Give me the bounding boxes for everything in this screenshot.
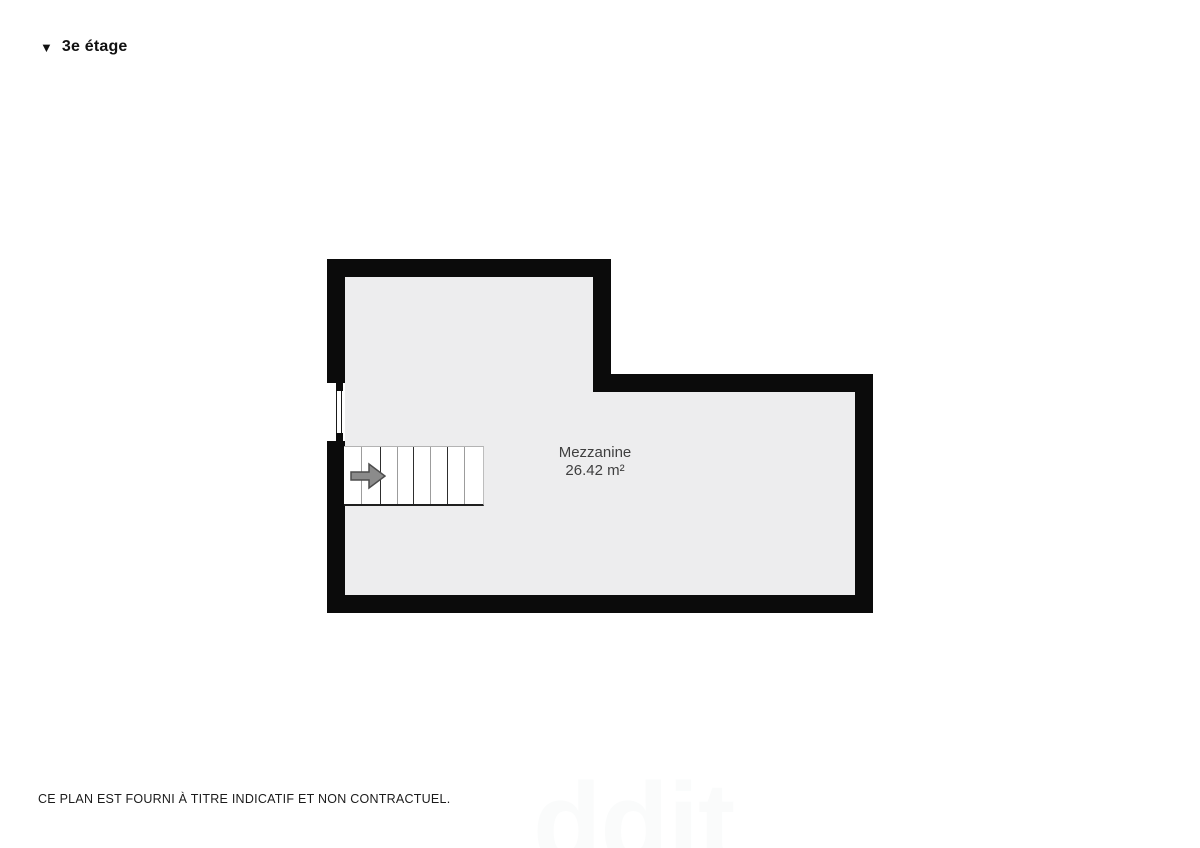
wall-bottom	[327, 595, 873, 613]
disclaimer-text: CE PLAN EST FOURNI À TITRE INDICATIF ET …	[38, 792, 450, 806]
wall-mid-right	[593, 259, 611, 392]
stair-tread-line	[397, 447, 398, 504]
window-glazing-lines	[336, 388, 342, 436]
wall-step-top	[593, 374, 873, 392]
stair-tread-line	[447, 447, 448, 504]
stair-tread-line	[464, 447, 465, 504]
floor-area-upper	[345, 277, 593, 595]
staircase	[344, 446, 484, 506]
window-jamb-top	[336, 383, 343, 391]
floor-plan: Mezzanine 26.42 m²	[0, 0, 1200, 848]
stairs-direction-arrow-icon	[350, 461, 386, 491]
stair-tread-line	[430, 447, 431, 504]
stair-tread-line	[413, 447, 414, 504]
room-label: Mezzanine 26.42 m²	[518, 444, 672, 480]
room-area: 26.42 m²	[518, 462, 672, 480]
wall-left-upper	[327, 259, 345, 383]
window-jamb-bottom	[336, 433, 343, 441]
wall-right	[855, 374, 873, 613]
wall-top	[327, 259, 611, 277]
wall-left-lower	[327, 441, 345, 613]
page: ▼ 3e étage Mezzanine 26.42 m²	[0, 0, 1200, 848]
room-name: Mezzanine	[518, 444, 672, 462]
floor-area-right	[593, 392, 855, 595]
